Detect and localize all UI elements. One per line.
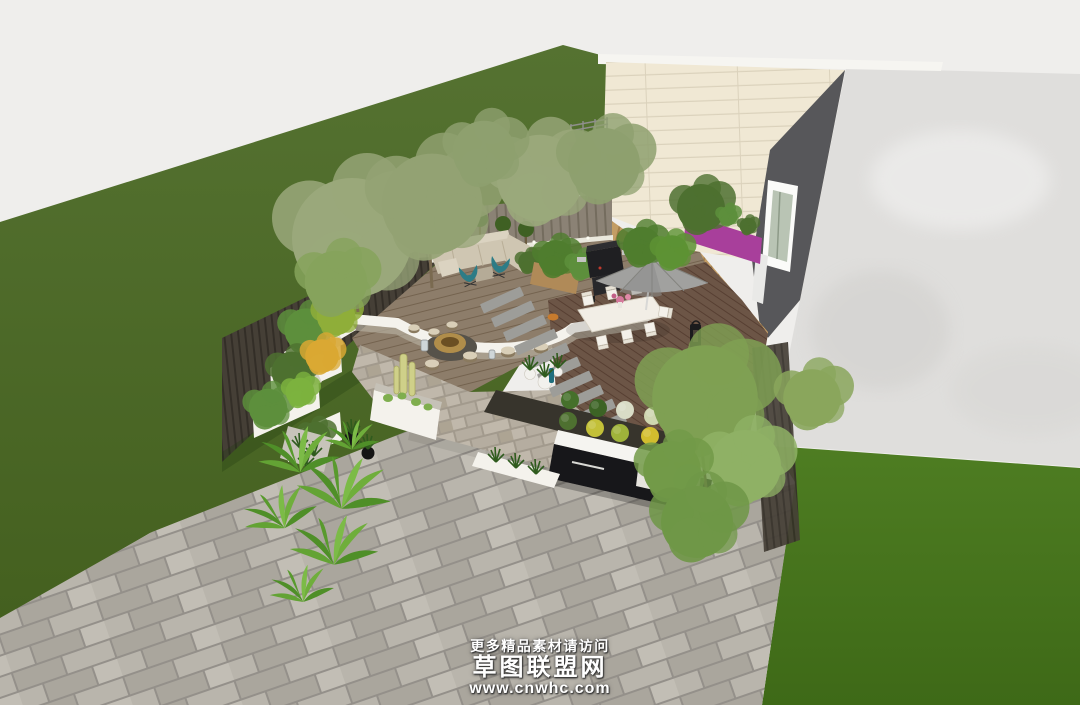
render-viewport: 更多精品素材请访问 草图联盟网 www.cnwhc.com xyxy=(0,0,1080,705)
front-lawn xyxy=(762,446,1080,705)
watermark-site-name: 草图联盟网 xyxy=(469,655,610,680)
orange-stool xyxy=(548,314,559,321)
watermark: 更多精品素材请访问 草图联盟网 www.cnwhc.com xyxy=(469,638,610,697)
watermark-notice: 更多精品素材请访问 xyxy=(469,638,610,655)
garden-3d-scene xyxy=(0,0,1080,705)
fire-bowl-inner xyxy=(441,337,459,347)
watermark-site-url: www.cnwhc.com xyxy=(469,680,610,697)
